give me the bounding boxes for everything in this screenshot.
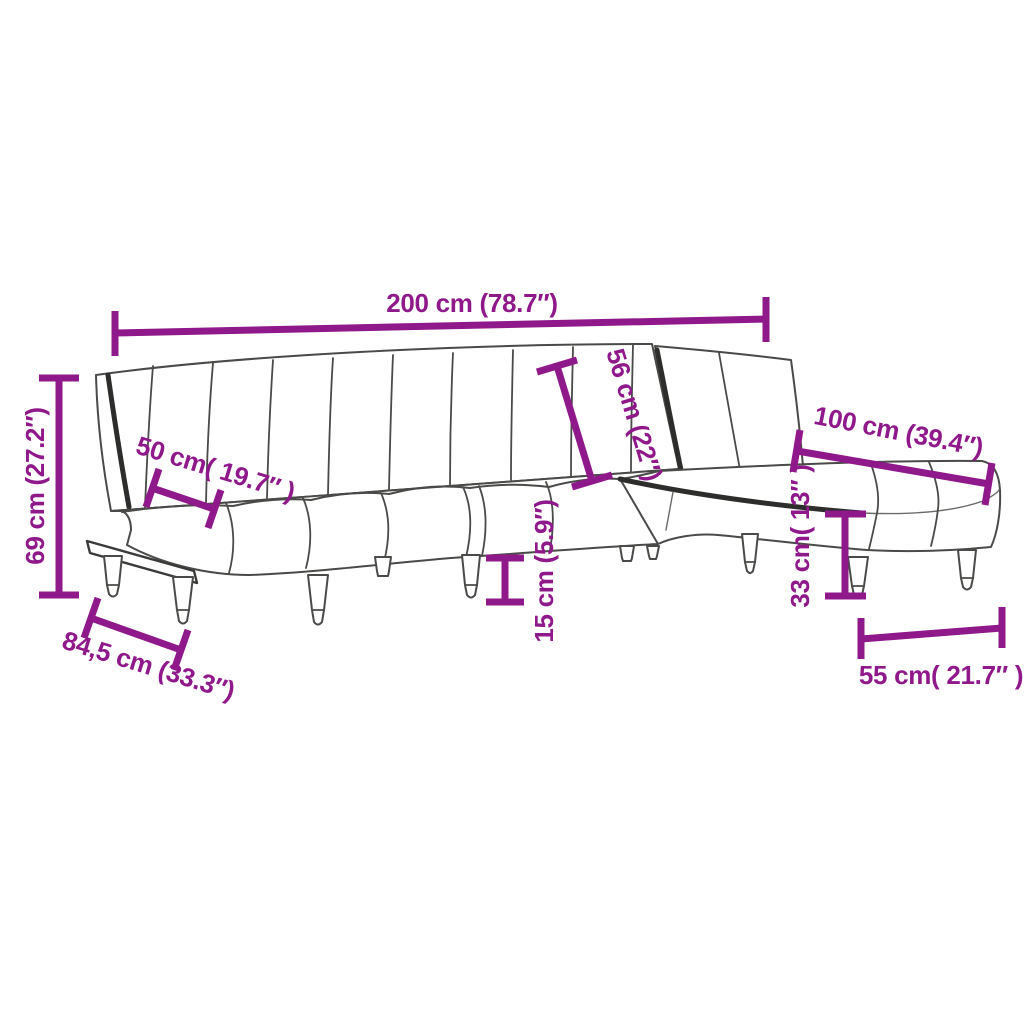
dimension-label-overall-length: 200 cm (78.7″) bbox=[386, 288, 558, 318]
leg-cone bbox=[620, 546, 634, 561]
leg-chaise-front-right bbox=[958, 550, 976, 590]
leg-back-middle bbox=[375, 557, 391, 576]
leg-front-center bbox=[462, 555, 480, 598]
leg-cone bbox=[173, 577, 193, 624]
dimension-diagram: 200 cm (78.7″) 69 cm (27.2″) 50 cm( 19.7… bbox=[0, 0, 1024, 1024]
leg-cone bbox=[647, 546, 659, 559]
leg-cone bbox=[848, 557, 868, 598]
leg-cone bbox=[742, 534, 758, 573]
dimension-label-overall-height: 69 cm (27.2″) bbox=[20, 407, 50, 564]
leg-chaise-back bbox=[742, 534, 758, 573]
leg-cone bbox=[462, 555, 480, 598]
leg-cone bbox=[958, 550, 976, 590]
dimension-label-chaise-length: 100 cm (39.4″) bbox=[812, 400, 986, 462]
dimension-line bbox=[861, 628, 1002, 639]
dimension-line bbox=[115, 319, 766, 333]
leg-front-left bbox=[173, 577, 193, 624]
leg-cone bbox=[308, 575, 328, 625]
leg-back-left bbox=[104, 556, 122, 597]
leg-chaise-front-left bbox=[848, 557, 868, 598]
dimension-overall-length: 200 cm (78.7″) bbox=[115, 288, 766, 356]
dimension-label-leg-height: 15 cm (5.9″) bbox=[529, 499, 559, 642]
dimension-label-chaise-width: 55 cm( 21.7″ ) bbox=[859, 660, 1023, 690]
leg-cone bbox=[375, 557, 391, 576]
dimension-base-depth: 84,5 cm (33.3″) bbox=[59, 598, 238, 706]
leg-cone bbox=[104, 556, 122, 597]
dimension-label-chaise-seat-height: 33 cm( 13″ ) bbox=[785, 464, 815, 607]
dimension-overall-height: 69 cm (27.2″) bbox=[20, 378, 79, 595]
dimension-chaise-width: 55 cm( 21.7″ ) bbox=[859, 607, 1023, 690]
leg-back-junction-1 bbox=[620, 546, 634, 561]
leg-back-junction-2 bbox=[647, 546, 659, 559]
leg-front-middle bbox=[308, 575, 328, 625]
sofa-dimension-svg: 200 cm (78.7″) 69 cm (27.2″) 50 cm( 19.7… bbox=[0, 0, 1024, 1024]
